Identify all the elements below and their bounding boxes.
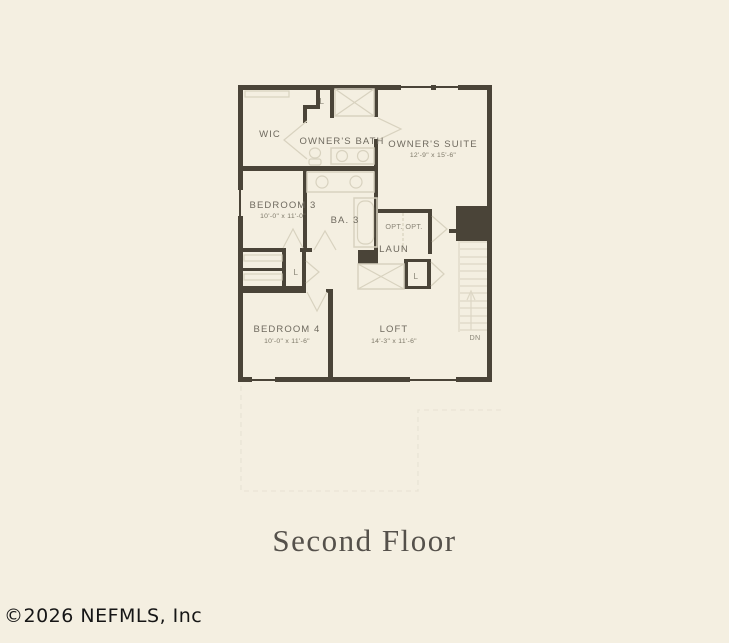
room-dims-bedroom-3: 10'-0" x 11'-0": [260, 213, 306, 220]
hall-closet-shelves: [244, 255, 282, 280]
window-bedroom4: [252, 379, 275, 381]
laundry-closet-door: [431, 262, 444, 286]
first-floor-outline: [241, 386, 505, 491]
room-label-bedroom-4: BEDROOM 4: [254, 324, 321, 335]
linen-closet-label-3: L: [414, 272, 419, 281]
room-label-owners-bath: OWNER'S BATH: [299, 136, 384, 147]
bedroom3-door: [283, 229, 303, 248]
window-loft: [410, 379, 456, 381]
room-label-laundry: LAUN: [379, 244, 409, 255]
owners-bath-vanity: [331, 148, 374, 164]
window-top: [401, 86, 458, 88]
stairs-down-label: DN: [470, 333, 481, 342]
stair-wall-block: [456, 206, 492, 241]
room-label-bath-3: BA. 3: [331, 215, 360, 226]
stairs-direction-arrow: [467, 291, 475, 330]
bath3-door: [314, 231, 336, 250]
floor-plan-page: WIC OWNER'S BATH OWNER'S SUITE 12'-9" x …: [0, 0, 729, 643]
window-bedroom3: [239, 190, 241, 216]
room-label-loft: LOFT: [380, 324, 409, 335]
linen-closet-label-2: L: [294, 268, 299, 277]
wic-shelf: [245, 91, 289, 97]
opt-closet-door: [432, 216, 447, 242]
opt-label-2: OPT.: [405, 222, 422, 231]
room-dims-owners-suite: 12'-9" x 15'-6": [410, 152, 457, 159]
bath3-vanity: [307, 172, 374, 192]
shower: [335, 89, 374, 116]
washer-dryer: [358, 264, 404, 289]
stairs: [459, 241, 487, 332]
room-label-bedroom-3: BEDROOM 3: [250, 200, 317, 211]
hall-closet-door: [306, 261, 319, 283]
room-label-owners-suite: OWNER'S SUITE: [388, 139, 477, 150]
owners-bath-toilet: [309, 148, 321, 165]
copyright-watermark: ©2026 NEFMLS, Inc: [4, 605, 202, 627]
room-dims-bedroom-4: 10'-0" x 11'-6": [264, 338, 310, 345]
bedroom4-door: [307, 292, 327, 311]
room-dims-loft: 14'-3" x 11'-6": [371, 338, 417, 345]
room-label-wic: WIC: [259, 129, 281, 140]
linen-closet-label-1: L: [320, 97, 325, 106]
room-labels: WIC OWNER'S BATH OWNER'S SUITE 12'-9" x …: [250, 97, 481, 345]
plan-title: Second Floor: [0, 523, 729, 559]
opt-label-1: OPT.: [385, 222, 402, 231]
